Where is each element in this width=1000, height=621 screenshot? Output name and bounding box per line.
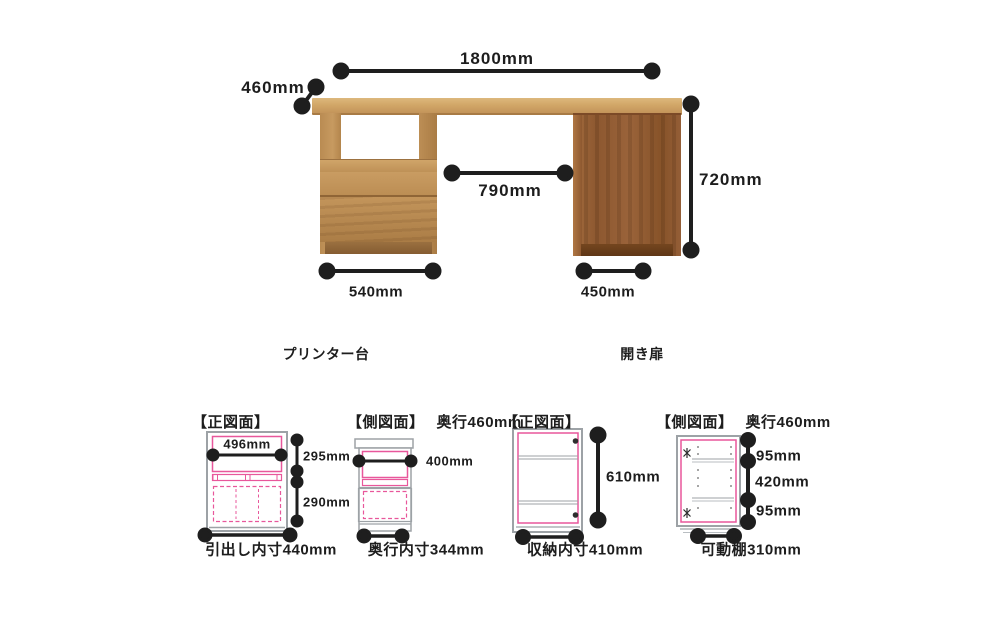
dim-opening-label: 790mm <box>478 181 542 201</box>
printer-stand-small-drawer <box>320 172 437 197</box>
dim-depth-label: 460mm <box>241 78 305 98</box>
printer-stand-shelf-board <box>320 159 437 173</box>
drawing-d-title-row: 【側図面】 奥行460mm <box>656 411 831 432</box>
drawing-a-title: 【正図面】 <box>192 411 270 432</box>
drawing-b-caption: 奥行内寸344mm <box>368 539 484 560</box>
door-cabinet-side-edge <box>573 115 582 256</box>
drawing-a-upper-height: 295mm <box>303 449 350 464</box>
drawing-c-title-row: 【正図面】 <box>503 411 581 432</box>
furniture-dimension-diagram: 1800mm 460mm 720mm 790mm 540mm 450mm プリン… <box>0 0 1000 621</box>
drawing-c-inner-height: 610mm <box>606 469 660 486</box>
shelf-pin-holes <box>697 446 732 509</box>
drawing-a-caption: 引出し内寸440mm <box>205 539 337 560</box>
drawing-cabinet-front <box>513 429 605 544</box>
drawing-d-caption: 可動棚310mm <box>701 539 802 560</box>
diagram-geometry <box>0 0 1000 621</box>
printer-stand-unit <box>320 113 437 254</box>
drawing-b-title: 【側図面】 <box>347 411 425 432</box>
drawing-d-subtitle: 奥行460mm <box>746 411 831 432</box>
printer-stand-large-drawer <box>320 197 437 242</box>
dim-width-label: 1800mm <box>460 49 534 69</box>
drawing-d-shelf-top: 95mm <box>756 448 801 465</box>
drawing-b-inner-depth: 400mm <box>426 454 473 469</box>
drawing-cabinet-side <box>677 434 754 542</box>
hinge-dot-bottom <box>573 512 579 518</box>
drawing-a-lower-height: 290mm <box>303 495 350 510</box>
door-cabinet-base <box>581 244 673 256</box>
drawing-b-title-row: 【側図面】 奥行460mm <box>347 411 522 432</box>
dim-left-unit-width-label: 540mm <box>349 284 403 301</box>
drawing-printer-stand-side <box>354 439 416 542</box>
screw-marks <box>684 448 691 518</box>
printer-stand-base <box>325 242 432 254</box>
drawing-d-shelf-bottom: 95mm <box>756 503 801 520</box>
drawing-a-inner-width: 496mm <box>223 437 270 452</box>
drawing-d-title: 【側図面】 <box>656 411 734 432</box>
drawing-a-title-row: 【正図面】 <box>192 411 270 432</box>
printer-stand-caption: プリンター台 <box>283 344 370 364</box>
hinge-dot-top <box>573 438 579 444</box>
dim-height-label: 720mm <box>699 170 763 190</box>
door-cabinet-unit <box>573 113 681 256</box>
dim-right-unit-width-label: 450mm <box>581 284 635 301</box>
drawing-c-caption: 収納内寸410mm <box>527 539 643 560</box>
drawing-d-shelf-span: 420mm <box>755 474 809 491</box>
door-cabinet-caption: 開き扉 <box>620 344 664 364</box>
drawing-c-title: 【正図面】 <box>503 411 581 432</box>
